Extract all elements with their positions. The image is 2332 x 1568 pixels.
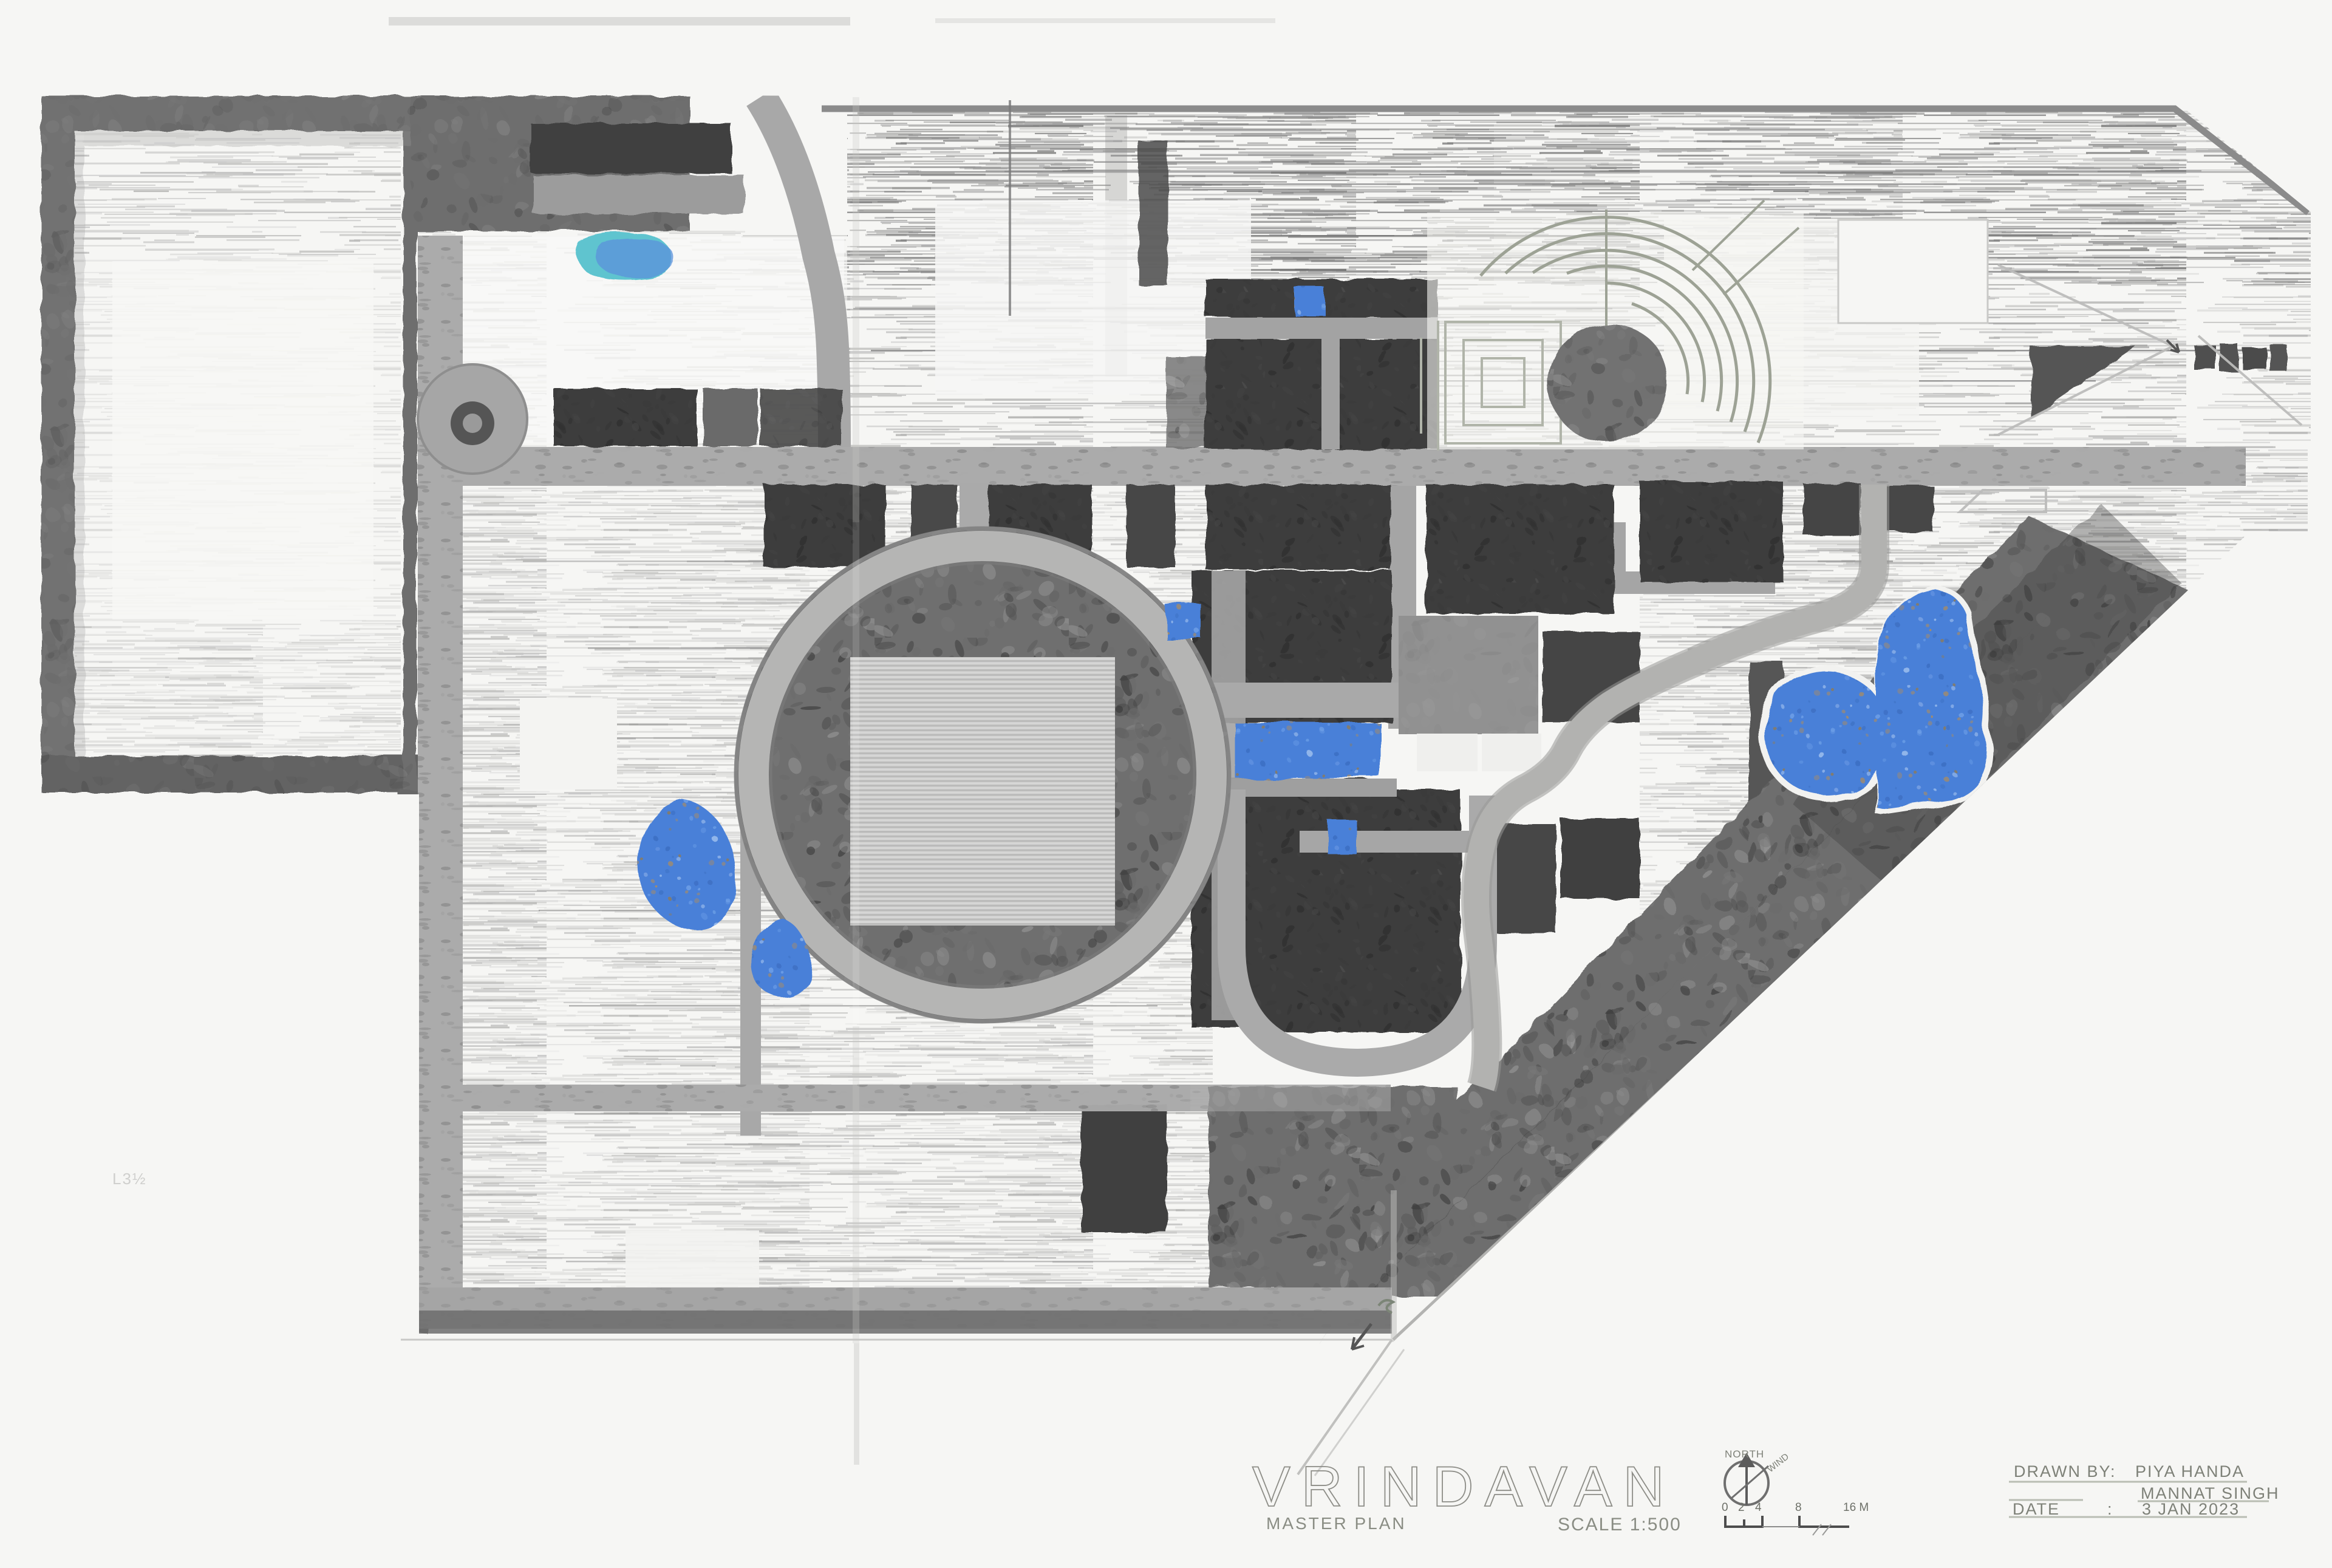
- svg-text:3 JAN 2023: 3 JAN 2023: [2142, 1500, 2240, 1518]
- svg-text:DATE: DATE: [2013, 1500, 2060, 1518]
- svg-text:2: 2: [1738, 1501, 1745, 1514]
- svg-text:NORTH: NORTH: [1725, 1448, 1764, 1460]
- svg-text:MASTER PLAN: MASTER PLAN: [1266, 1514, 1406, 1533]
- svg-text:4: 4: [1755, 1501, 1762, 1514]
- svg-text:PIYA HANDA: PIYA HANDA: [2135, 1462, 2245, 1481]
- svg-text:8: 8: [1795, 1501, 1802, 1514]
- svg-text::: :: [2107, 1500, 2113, 1518]
- svg-text:DRAWN BY:: DRAWN BY:: [2014, 1462, 2116, 1481]
- svg-text:SCALE 1:500: SCALE 1:500: [1558, 1515, 1682, 1535]
- svg-text:16 M: 16 M: [1843, 1501, 1869, 1514]
- svg-text:VRINDAVAN: VRINDAVAN: [1252, 1454, 1676, 1518]
- svg-text:0: 0: [1722, 1501, 1728, 1514]
- svg-text:L3½: L3½: [112, 1170, 147, 1188]
